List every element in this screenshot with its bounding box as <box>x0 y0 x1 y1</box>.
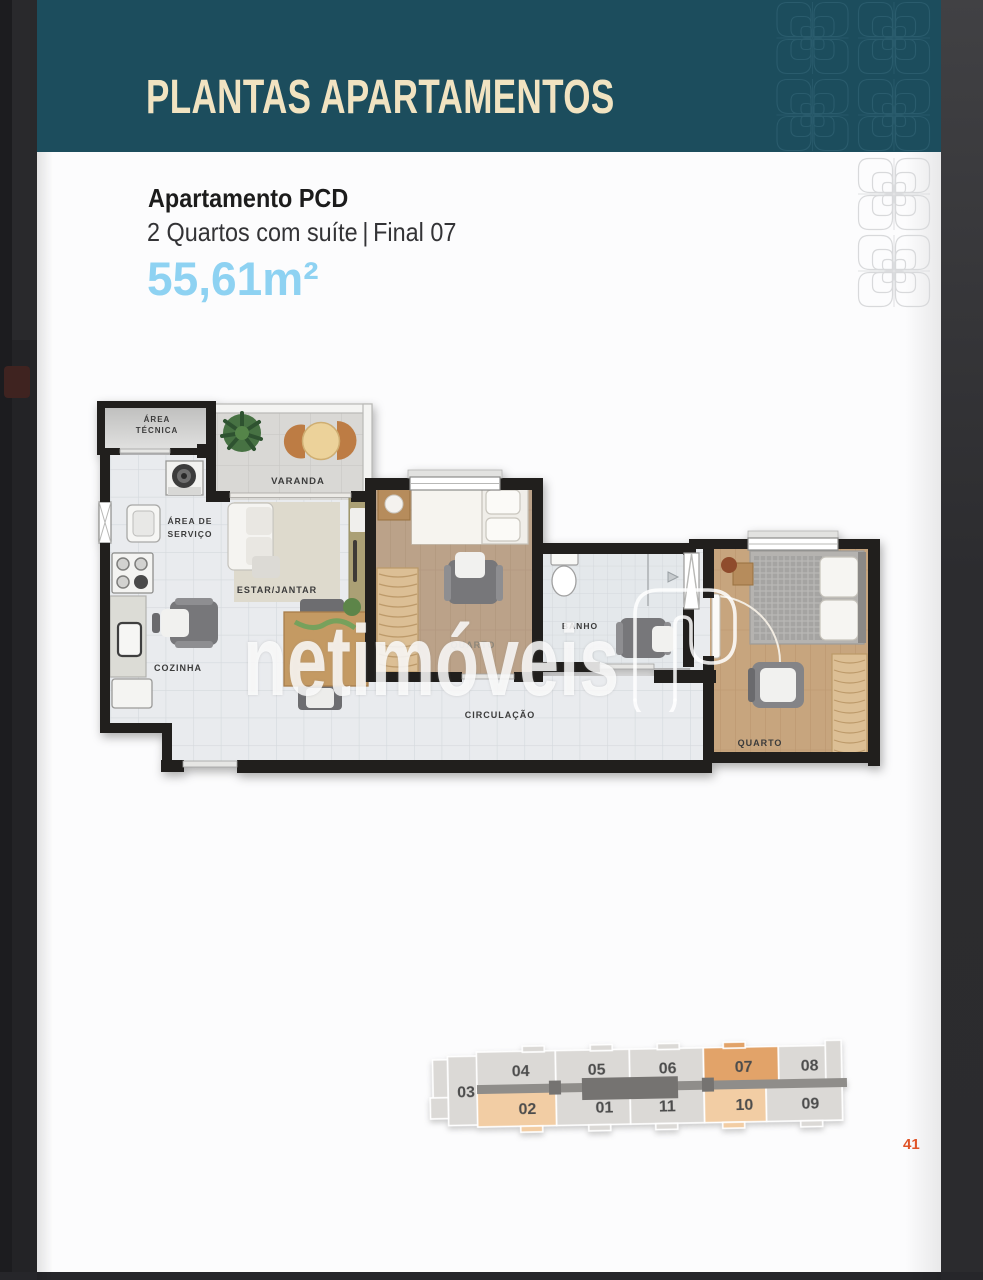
svg-text:09: 09 <box>801 1096 819 1113</box>
svg-text:SERVIÇO: SERVIÇO <box>167 529 212 539</box>
svg-text:ÁREA: ÁREA <box>144 415 171 424</box>
svg-text:04: 04 <box>512 1063 530 1080</box>
svg-text:TÉCNICA: TÉCNICA <box>136 426 179 435</box>
svg-text:08: 08 <box>801 1058 819 1075</box>
svg-text:05: 05 <box>588 1062 606 1079</box>
svg-text:06: 06 <box>659 1060 677 1077</box>
svg-text:VARANDA: VARANDA <box>271 476 325 487</box>
svg-text:01: 01 <box>595 1099 613 1116</box>
svg-text:11: 11 <box>659 1098 676 1115</box>
svg-text:ESTAR/JANTAR: ESTAR/JANTAR <box>237 585 317 595</box>
svg-text:02: 02 <box>518 1101 536 1118</box>
svg-text:10: 10 <box>735 1097 753 1114</box>
svg-text:COZINHA: COZINHA <box>154 663 202 673</box>
svg-text:07: 07 <box>735 1059 753 1076</box>
svg-text:ÁREA DE: ÁREA DE <box>168 516 213 526</box>
svg-text:03: 03 <box>457 1084 475 1101</box>
svg-text:QUARTO: QUARTO <box>738 738 783 748</box>
